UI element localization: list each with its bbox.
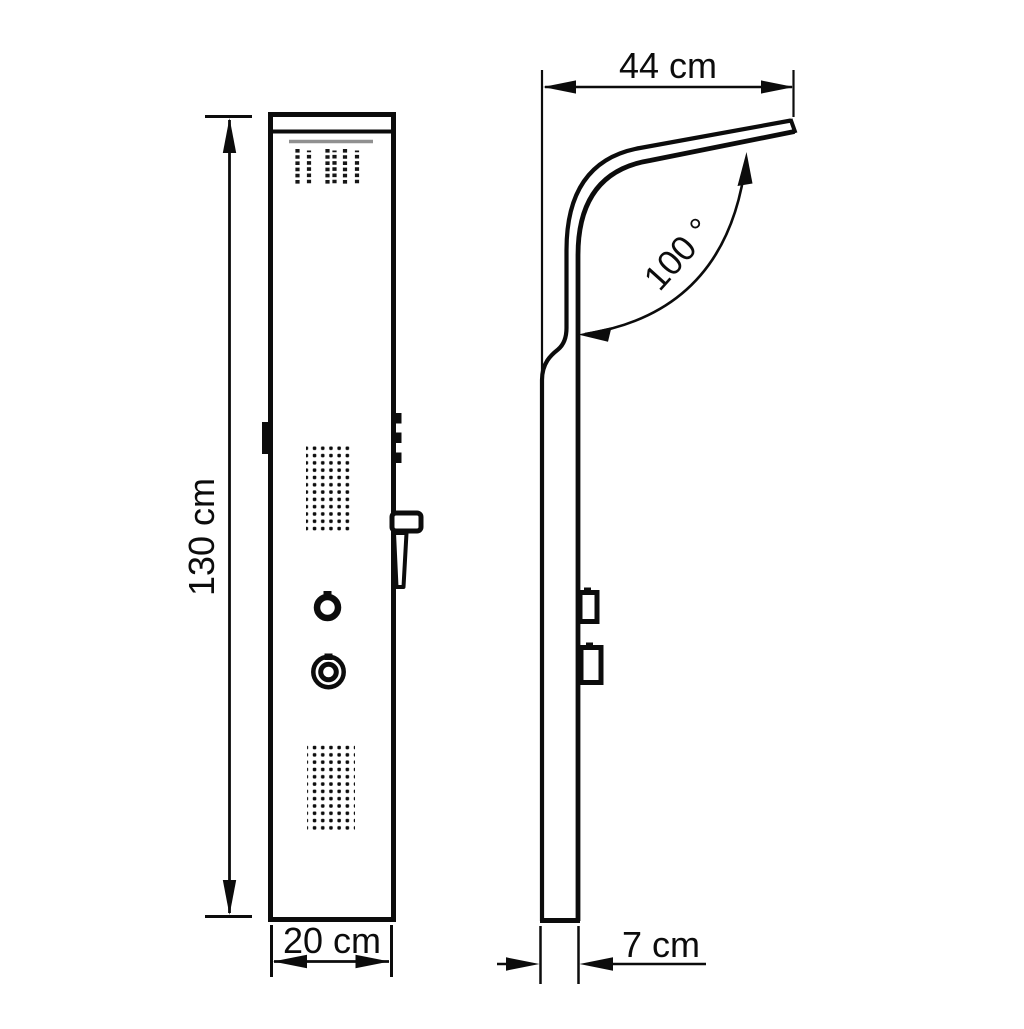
angle-dimension-label: 100 ° [636,211,720,298]
body-jet-grid-lower [307,743,355,833]
side-view: 44 cm 100 ° 7 cm [497,45,796,984]
hand-shower-wand [394,533,407,587]
body-jet-grid-upper [306,444,353,532]
depth-dimension-label: 7 cm [622,924,700,965]
left-edge-tab [262,422,271,454]
shower-panel-drawing: 130 cm 20 cm [0,0,1024,1024]
knob-profile-upper [580,588,597,622]
front-view: 130 cm 20 cm [181,115,421,978]
right-edge-nubs [394,413,402,463]
reach-dimension-label: 44 cm [619,45,717,86]
hand-shower-bracket [392,513,421,531]
height-dimension-label: 130 cm [181,478,222,596]
technical-drawing-page: 130 cm 20 cm [0,0,1024,1024]
width-dimension-label: 20 cm [283,920,381,961]
hand-shower-holder [392,513,421,587]
knob-profile-lower [581,643,601,683]
